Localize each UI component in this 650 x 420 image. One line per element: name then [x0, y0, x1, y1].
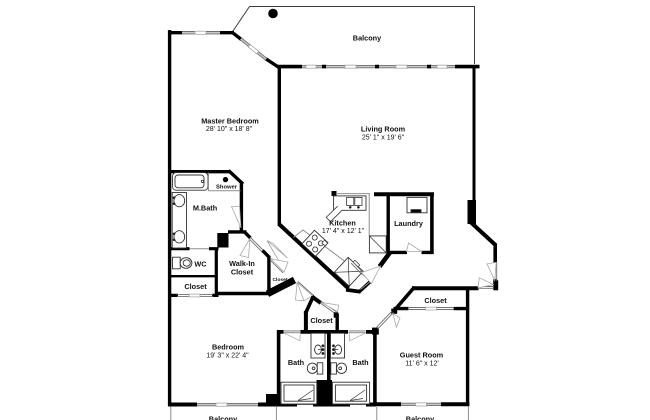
svg-text:Closet: Closet [184, 282, 207, 291]
svg-text:Master Bedroom: Master Bedroom [201, 117, 259, 126]
svg-text:Bedroom: Bedroom [212, 343, 245, 352]
svg-text:Bath: Bath [352, 358, 368, 367]
svg-text:Closet: Closet [424, 296, 447, 305]
svg-text:M.Bath: M.Bath [193, 204, 217, 213]
svg-text:28' 10" x 18' 8": 28' 10" x 18' 8" [206, 126, 253, 133]
svg-text:Kitchen: Kitchen [329, 219, 356, 228]
svg-text:11' 6" x 12': 11' 6" x 12' [405, 361, 438, 368]
svg-text:25' 1" x 19' 6": 25' 1" x 19' 6" [362, 135, 405, 142]
svg-text:17' 4" x 12' 1": 17' 4" x 12' 1" [322, 228, 365, 235]
svg-text:Closet: Closet [310, 316, 333, 325]
svg-text:19' 3" x 22' 4": 19' 3" x 22' 4" [206, 353, 249, 360]
svg-text:Living Room: Living Room [361, 125, 406, 134]
svg-text:Laundry: Laundry [394, 219, 424, 228]
svg-text:Shower: Shower [216, 185, 238, 191]
svg-text:WC: WC [194, 260, 207, 269]
svg-text:Balcony: Balcony [209, 415, 238, 420]
svg-text:Guest Room: Guest Room [400, 351, 444, 360]
svg-text:Balcony: Balcony [353, 34, 382, 43]
svg-text:Bath: Bath [288, 358, 304, 367]
svg-text:Balcony: Balcony [406, 415, 435, 420]
svg-text:Closet: Closet [231, 268, 254, 277]
